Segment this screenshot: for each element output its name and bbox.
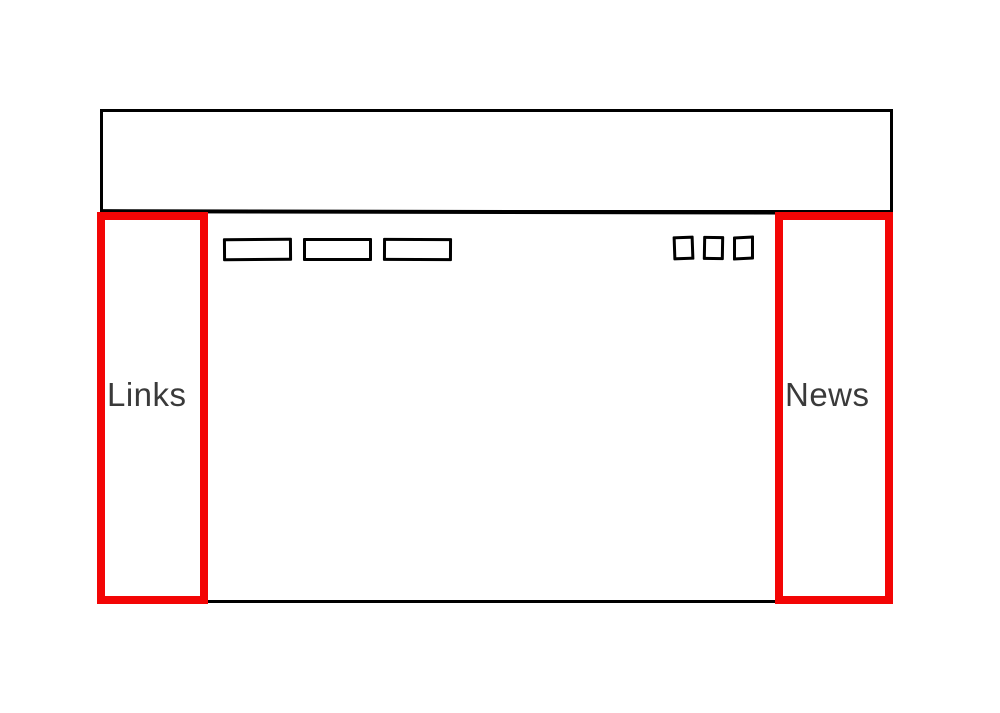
nav-button-2[interactable] [303,238,372,261]
header-region [100,109,893,213]
nav-button-3[interactable] [383,238,452,261]
content-bottom-border [208,600,775,603]
links-sidebar: Links [97,212,208,604]
control-square-1[interactable] [673,236,695,261]
links-sidebar-label: Links [105,378,187,411]
nav-button-row [223,238,452,261]
control-square-2[interactable] [703,236,724,260]
news-sidebar: News [775,212,893,604]
window-controls [673,236,754,260]
wireframe-canvas: Links News [0,0,1000,713]
news-sidebar-label: News [783,378,870,411]
control-square-3[interactable] [733,235,754,260]
nav-button-1[interactable] [223,238,292,261]
